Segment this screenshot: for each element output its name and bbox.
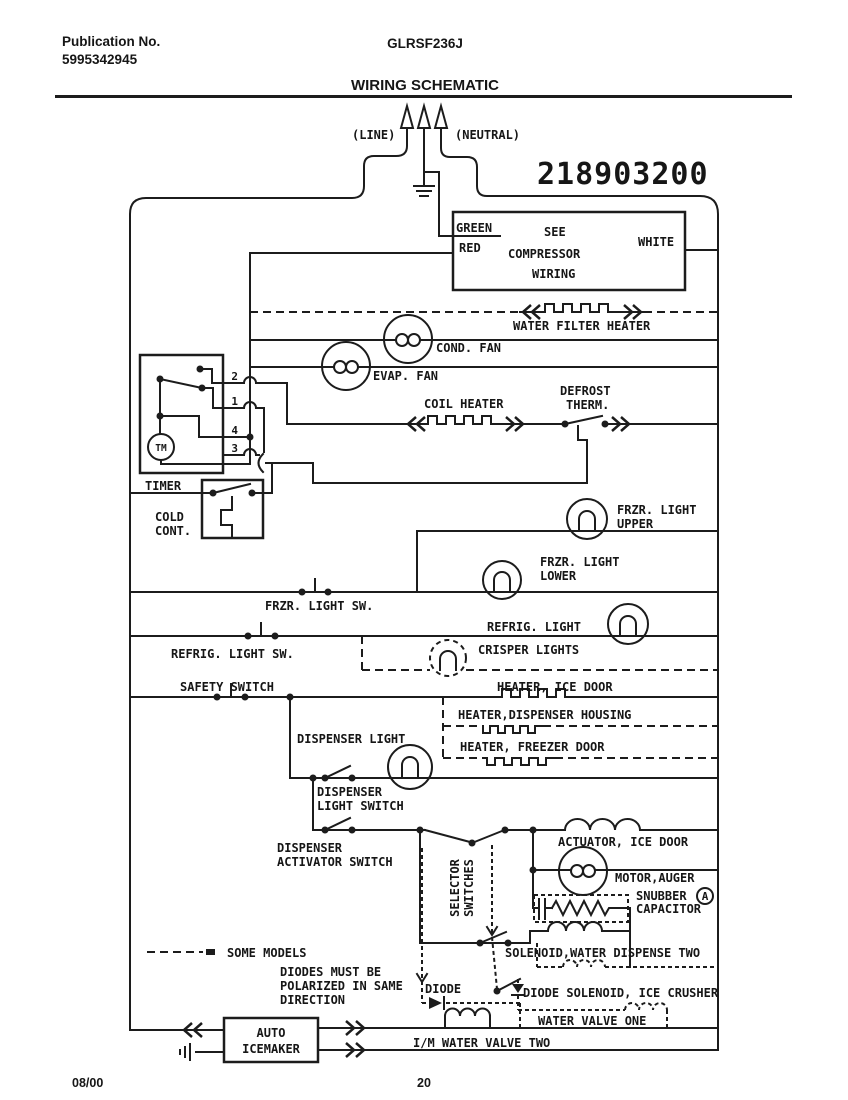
compressor-note-3: WIRING bbox=[532, 267, 575, 281]
heater-dispenser-housing-element-icon bbox=[483, 726, 543, 733]
schematic-page: Publication No. 5995342945 GLRSF236J WIR… bbox=[0, 0, 848, 1100]
line-label: (LINE) bbox=[352, 128, 395, 142]
timer-label: TIMER bbox=[145, 479, 182, 493]
circled-a-label: A bbox=[702, 890, 709, 903]
page-title: WIRING SCHEMATIC bbox=[351, 77, 499, 94]
defrost-row: COIL HEATER DEFROST THERM. bbox=[266, 384, 718, 483]
timer-pin-2: 2 bbox=[231, 370, 238, 383]
some-models-label: SOME MODELS bbox=[227, 946, 306, 960]
solenoid-coil-icon bbox=[548, 922, 602, 931]
header-rule bbox=[55, 95, 792, 98]
connector-arrows-icon bbox=[346, 1021, 364, 1057]
diode-solenoid-ice-crusher-label: DIODE SOLENOID, ICE CRUSHER bbox=[523, 986, 719, 1000]
heater-freezer-door-element-icon bbox=[487, 758, 555, 765]
coil-heater-element-icon bbox=[428, 416, 500, 424]
selector-switches-label-1: SELECTOR bbox=[448, 858, 462, 917]
timer-pin-1: 1 bbox=[231, 395, 238, 408]
crisper-lights-label: CRISPER LIGHTS bbox=[478, 643, 579, 657]
heater-element-icon bbox=[545, 304, 617, 312]
water-filter-heater-row: WATER FILTER HEATER bbox=[250, 304, 718, 333]
motor-auger-label: MOTOR,AUGER bbox=[615, 871, 695, 885]
dispenser-light-switch-label-1: DISPENSER bbox=[317, 785, 383, 799]
ground-icon bbox=[180, 1044, 190, 1060]
timer-pin-4: 4 bbox=[231, 424, 238, 437]
frzr-light-upper-label-1: FRZR. LIGHT bbox=[617, 503, 696, 517]
dispenser-light-switch-label-2: LIGHT SWITCH bbox=[317, 799, 404, 813]
evap-fan-label: EVAP. FAN bbox=[373, 369, 438, 383]
solenoid-coil-alt-icon bbox=[563, 960, 605, 967]
compressor-note-1: SEE bbox=[544, 225, 566, 239]
auto-icemaker-label-1: AUTO bbox=[257, 1026, 286, 1040]
solenoid-water-dispense-label: SOLENOID,WATER DISPENSE TWO bbox=[505, 946, 700, 960]
freezer-lights: FRZR. LIGHT UPPER FRZR. LIGHT LOWER FRZR… bbox=[130, 499, 718, 613]
crisper-lights-lamp-icon bbox=[430, 640, 466, 676]
bellows-icon bbox=[221, 497, 232, 536]
dispenser-activator-switch-label-1: DISPENSER bbox=[277, 841, 343, 855]
neutral-arrow-icon bbox=[435, 106, 447, 128]
frzr-light-upper-label-2: UPPER bbox=[617, 517, 654, 531]
auto-icemaker: AUTO ICEMAKER bbox=[180, 1018, 318, 1062]
dispenser-light-switch-icon bbox=[325, 766, 350, 778]
diodes-note-3: DIRECTION bbox=[280, 993, 345, 1007]
coil-heater-label: COIL HEATER bbox=[424, 397, 504, 411]
diodes-note-1: DIODES MUST BE bbox=[280, 965, 381, 979]
dispenser-activator-switch-icon bbox=[325, 818, 350, 830]
heater-freezer-door-label: HEATER, FREEZER DOOR bbox=[460, 740, 605, 754]
cold-control-label-1: COLD bbox=[155, 510, 184, 524]
dispenser-light-label: DISPENSER LIGHT bbox=[297, 732, 405, 746]
ground-icon bbox=[414, 186, 434, 196]
resistor-icon bbox=[552, 901, 630, 915]
safety-switch-label: SAFETY SWITCH bbox=[180, 680, 274, 694]
defrost-therm-label-2: THERM. bbox=[566, 398, 609, 412]
refrig-light-lamp-icon bbox=[608, 604, 648, 644]
heater-ice-door-label: HEATER, ICE DOOR bbox=[497, 680, 613, 694]
dispenser-activator-switch-label-2: ACTIVATOR SWITCH bbox=[277, 855, 393, 869]
frzr-light-lower-label-1: FRZR. LIGHT bbox=[540, 555, 619, 569]
footer-page-number: 20 bbox=[417, 1076, 431, 1090]
snubber-label-2: CAPACITOR bbox=[636, 902, 702, 916]
red-wire-label: RED bbox=[459, 241, 481, 255]
compressor-note-2: COMPRESSOR bbox=[508, 247, 581, 261]
frzr-light-lower-lamp-icon bbox=[483, 561, 521, 599]
snubber-label-1: SNUBBER bbox=[636, 889, 687, 903]
refrig-light-label: REFRIG. LIGHT bbox=[487, 620, 581, 634]
legend-dash-icon bbox=[206, 949, 215, 955]
diode-icon bbox=[429, 997, 442, 1009]
part-number: 218903200 bbox=[537, 157, 709, 192]
gang-link-line bbox=[492, 845, 497, 989]
defrost-therm-label-1: DEFROST bbox=[560, 384, 611, 398]
line-arrow-icon bbox=[401, 106, 413, 128]
cold-control-label-2: CONT. bbox=[155, 524, 191, 538]
im-water-valve-two-label: I/M WATER VALVE TWO bbox=[413, 1036, 550, 1050]
wiring-schematic-canvas: Publication No. 5995342945 GLRSF236J WIR… bbox=[0, 0, 848, 1100]
timer-assembly: TM TIMER 2 1 4 3 bbox=[140, 355, 287, 493]
water-valve-one-label: WATER VALVE ONE bbox=[538, 1014, 646, 1028]
neutral-label: (NEUTRAL) bbox=[455, 128, 520, 142]
white-wire-label: WHITE bbox=[638, 235, 674, 249]
green-wire-label: GREEN bbox=[456, 221, 492, 235]
frzr-light-sw-label: FRZR. LIGHT SW. bbox=[265, 599, 373, 613]
capacitor-icon bbox=[533, 899, 552, 919]
publication-label: Publication No. bbox=[62, 34, 160, 49]
refrig-light-sw-label: REFRIG. LIGHT SW. bbox=[171, 647, 294, 661]
actuator-coil-icon bbox=[565, 819, 640, 830]
timer-pin-3: 3 bbox=[231, 442, 238, 455]
defrost-therm-contact-icon bbox=[565, 416, 602, 424]
footer-date: 08/00 bbox=[72, 1076, 103, 1090]
selector-switches-label-2: SWITCHES bbox=[462, 859, 476, 917]
refrig-lights: REFRIG. LIGHT SW. REFRIG. LIGHT CRISPER … bbox=[130, 604, 718, 676]
connector-socket-icon bbox=[259, 454, 264, 472]
frzr-light-lower-label-2: LOWER bbox=[540, 569, 577, 583]
publication-number: 5995342945 bbox=[62, 52, 138, 67]
model-number: GLRSF236J bbox=[387, 36, 463, 51]
frzr-light-upper-lamp-icon bbox=[567, 499, 607, 539]
heater-dispenser-housing-label: HEATER,DISPENSER HOUSING bbox=[458, 708, 631, 722]
diode-label: DIODE bbox=[425, 982, 461, 996]
compressor-box: GREEN RED WHITE SEE COMPRESSOR WIRING bbox=[250, 212, 718, 290]
dispenser-light-lamp-icon bbox=[388, 745, 432, 789]
auto-icemaker-label-2: ICEMAKER bbox=[242, 1042, 301, 1056]
ice-crusher-coil-icon bbox=[625, 1003, 667, 1010]
water-filter-heater-label: WATER FILTER HEATER bbox=[513, 319, 651, 333]
timer-motor-label: TM bbox=[155, 443, 167, 454]
ground-arrow-icon bbox=[418, 106, 430, 128]
diodes-note-2: POLARIZED IN SAME bbox=[280, 979, 403, 993]
notes: SOME MODELS DIODES MUST BE POLARIZED IN … bbox=[147, 946, 403, 1007]
actuator-motor-area: ACTUATOR, ICE DOOR MOTOR,AUGER SNUBBER C… bbox=[505, 819, 718, 922]
footer: 08/00 20 bbox=[72, 1076, 431, 1090]
cond-fan-label: COND. FAN bbox=[436, 341, 501, 355]
water-valve-one-coil-icon bbox=[445, 1009, 490, 1028]
